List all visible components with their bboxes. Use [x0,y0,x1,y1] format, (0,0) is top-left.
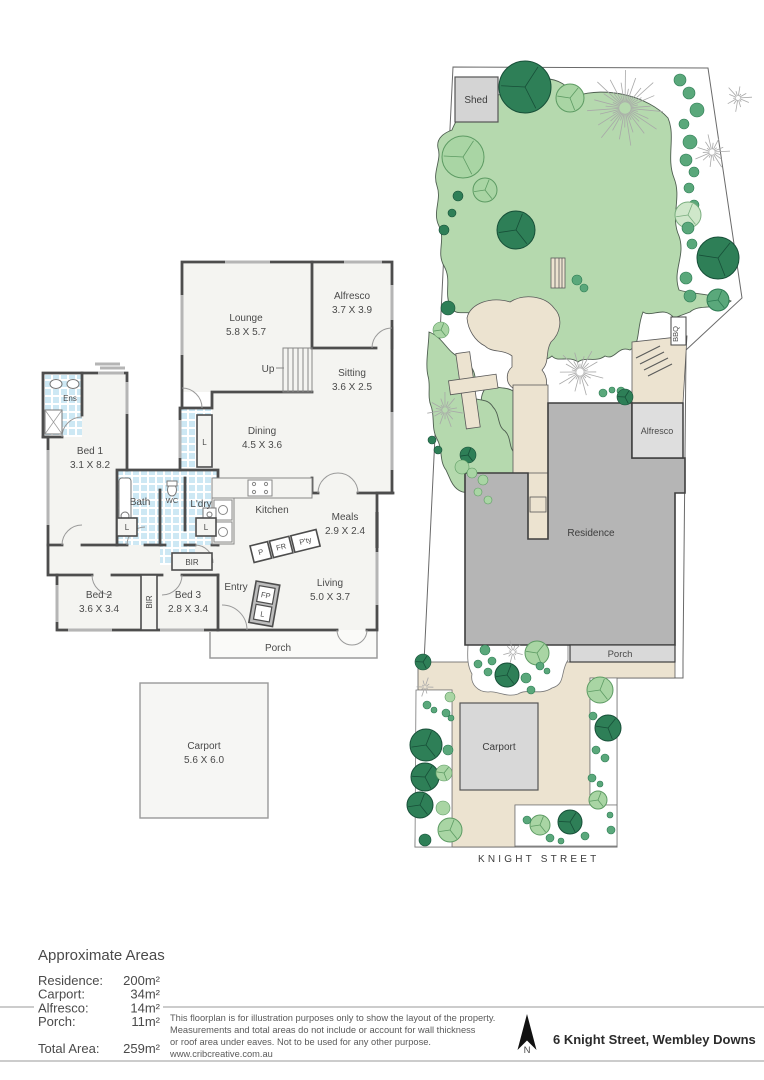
lounge-dims: 5.8 X 5.7 [226,327,266,338]
areas-row-label: Porch: [38,1014,76,1029]
living-label: Living [317,578,343,589]
bed2-label: Bed 2 [86,590,113,601]
meals-label: Meals [332,512,359,523]
disclaimer-line1: This floorplan is for illustration purpo… [170,1013,495,1023]
site-courtyard-store [530,497,546,512]
site-porch-label: Porch [608,649,633,660]
site-carport-label: Carport [482,742,516,753]
porch-label: Porch [265,643,291,654]
bath-label: Bath [130,497,151,508]
kitchen-label: Kitchen [255,505,288,516]
bbq-label: BBQ [671,326,680,342]
meals-dims: 2.9 X 2.4 [325,526,365,537]
linen-right-label: L [204,523,209,532]
linen-left-label: L [125,523,130,532]
street-label: KNIGHT STREET [478,854,599,865]
disclaimer-line3: or roof area under eaves. Not to be used… [170,1037,431,1047]
site-residence-label: Residence [567,528,615,539]
areas-total-label: Total Area: [38,1041,99,1056]
living-dims: 5.0 X 3.7 [310,592,350,603]
entry-label: Entry [224,582,247,593]
areas-total-value: 259m² [123,1041,161,1056]
alfresco-dims: 3.7 X 3.9 [332,305,372,316]
ldry-label: L'dry [190,499,211,510]
bed3-label: Bed 3 [175,590,202,601]
carport-label: Carport [187,741,221,752]
address-label: 6 Knight Street, Wembley Downs [553,1032,756,1047]
fp-label: FP [260,590,271,601]
lounge-label: Lounge [229,313,263,324]
areas-row-value: 11m² [131,1014,160,1029]
bed3-dims: 2.8 X 3.4 [168,604,208,615]
floor-plan: Lounge 5.8 X 5.7 Alfresco 3.7 X 3.9 Up S… [43,262,393,818]
dining-dims: 4.5 X 3.6 [242,440,282,451]
hall-linen-label: L [202,438,207,447]
sitting-label: Sitting [338,368,366,379]
site-alfresco-label: Alfresco [641,426,674,436]
bed1-dims: 3.1 X 8.2 [70,460,110,471]
deck-steps [551,258,565,288]
bir-label: BIR [185,558,199,567]
shed-label: Shed [464,95,487,106]
up-label: Up [262,364,275,375]
floorplan-page: Shed BBQ Alfresco Residence Porch Carpor… [0,0,764,1080]
bed2-dims: 3.6 X 3.4 [79,604,119,615]
bir-vertical-label: BIR [145,595,154,609]
dining-label: Dining [248,426,276,437]
disclaimer-line2: Measurements and total areas do not incl… [170,1025,476,1035]
north-letter: N [524,1045,531,1056]
wc-label: WC [166,496,179,505]
carport-dims: 5.6 X 6.0 [184,755,224,766]
sitting-dims: 3.6 X 2.5 [332,382,372,393]
footer: Approximate Areas Residence: 200m² Carpo… [0,947,764,1061]
alfresco-label: Alfresco [334,291,371,302]
website-link[interactable]: www.cribcreative.com.au [169,1049,273,1059]
areas-title: Approximate Areas [38,947,165,964]
bed1-label: Bed 1 [77,446,104,457]
site-plan: Shed BBQ Alfresco Residence Porch Carpor… [407,61,752,865]
ens-label: Ens [63,394,77,403]
floorplan-canvas: Shed BBQ Alfresco Residence Porch Carpor… [0,0,764,1080]
